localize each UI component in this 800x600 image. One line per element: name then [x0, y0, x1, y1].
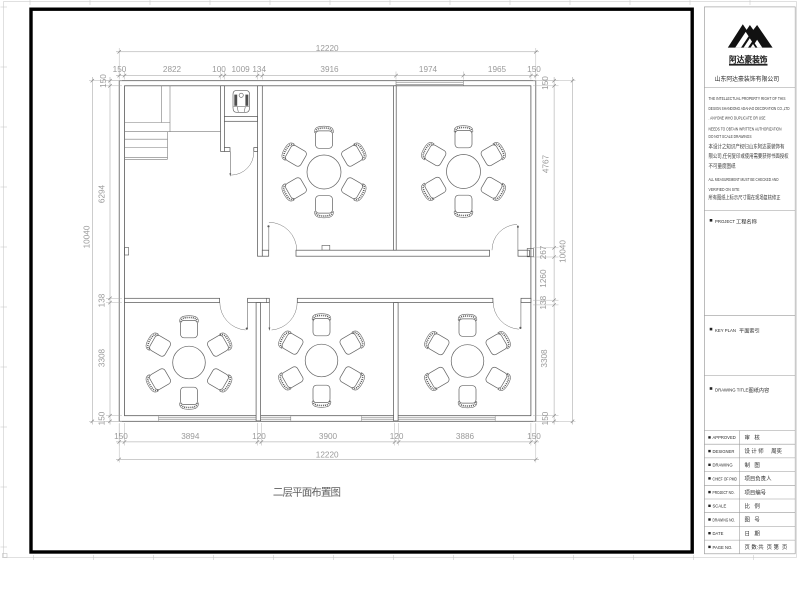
svg-text:134: 134	[252, 65, 266, 74]
svg-text:150: 150	[541, 76, 550, 90]
svg-text:150: 150	[114, 432, 128, 441]
svg-text:1009: 1009	[231, 65, 250, 74]
svg-text:设 计 师 周奕: 设 计 师 周奕	[745, 447, 783, 455]
svg-text:138: 138	[539, 295, 548, 309]
svg-text:. ANYONE WHO DUPLICATE OR USE: . ANYONE WHO DUPLICATE OR USE	[709, 116, 766, 121]
svg-text:DRAWING NO.: DRAWING NO.	[713, 517, 736, 522]
svg-text:3894: 3894	[181, 432, 200, 441]
svg-text:DO NOT SCALE DRAWINGS: DO NOT SCALE DRAWINGS	[709, 134, 752, 139]
svg-text:本设计之知识产权归山东阿达豪装饰有: 本设计之知识产权归山东阿达豪装饰有	[709, 142, 785, 150]
svg-text:1260: 1260	[539, 269, 548, 288]
svg-text:工程名称: 工程名称	[736, 218, 757, 226]
svg-text:限公司,任何复印或使用需要获得书面授权: 限公司,任何复印或使用需要获得书面授权	[709, 152, 789, 160]
svg-text:10040: 10040	[559, 240, 568, 263]
svg-text:不可量度图纸: 不可量度图纸	[709, 162, 736, 170]
svg-text:项目编号: 项目编号	[745, 488, 767, 496]
svg-text:10040: 10040	[82, 225, 91, 248]
svg-text:12220: 12220	[316, 451, 339, 460]
svg-text:6294: 6294	[98, 184, 107, 203]
svg-text:THE INTELLECTUAL PROPERTY RIGH: THE INTELLECTUAL PROPERTY RIGHT OF THIS	[709, 96, 786, 101]
svg-text:4767: 4767	[541, 154, 550, 173]
svg-text:3916: 3916	[320, 65, 339, 74]
svg-text:二层平面布置图: 二层平面布置图	[273, 487, 341, 499]
svg-text:SCALE: SCALE	[713, 504, 727, 509]
svg-text:PROJECT: PROJECT	[715, 219, 735, 224]
svg-text:2822: 2822	[163, 65, 182, 74]
svg-text:PAGE NO.: PAGE NO.	[713, 545, 733, 550]
svg-text:DESIGN SHANDONG ADAHAO DECORAT: DESIGN SHANDONG ADAHAO DECORATION CO.,LT…	[709, 106, 790, 111]
svg-text:120: 120	[252, 432, 266, 441]
svg-text:所有图纸上标示尺寸需在现场复核修正: 所有图纸上标示尺寸需在现场复核修正	[709, 193, 781, 201]
svg-text:1965: 1965	[488, 65, 507, 74]
svg-text:1974: 1974	[419, 65, 438, 74]
svg-text:DRAWING TITLE: DRAWING TITLE	[715, 387, 749, 392]
svg-text:PROJECT NO.: PROJECT NO.	[713, 490, 735, 495]
svg-text:120: 120	[390, 432, 404, 441]
svg-text:日 期: 日 期	[745, 530, 760, 537]
svg-text:DESIGNER: DESIGNER	[713, 449, 735, 454]
svg-text:267: 267	[539, 245, 548, 259]
svg-text:12220: 12220	[316, 44, 339, 53]
svg-text:150: 150	[541, 411, 550, 425]
svg-text:项目负责人: 项目负责人	[745, 475, 773, 483]
svg-text:阿达豪装饰: 阿达豪装饰	[729, 54, 768, 64]
svg-text:图纸内容: 图纸内容	[749, 386, 770, 394]
svg-text:制 图: 制 图	[745, 461, 760, 469]
svg-text:150: 150	[527, 65, 541, 74]
svg-text:150: 150	[98, 411, 107, 425]
svg-text:DRAWING: DRAWING	[713, 463, 733, 468]
svg-text:3308: 3308	[540, 349, 549, 368]
svg-text:比 例: 比 例	[745, 502, 760, 510]
svg-text:CHIEF OF PMD: CHIEF OF PMD	[713, 476, 738, 481]
svg-text:平面索引: 平面索引	[739, 326, 760, 334]
svg-text:3308: 3308	[98, 348, 107, 367]
svg-text:3886: 3886	[456, 432, 475, 441]
svg-text:3900: 3900	[319, 432, 338, 441]
svg-text:150: 150	[527, 432, 541, 441]
svg-text:DATE: DATE	[713, 531, 724, 536]
svg-text:VERIFIED ON SITE: VERIFIED ON SITE	[709, 187, 740, 192]
svg-text:100: 100	[212, 65, 226, 74]
svg-text:ALL MEASUREMENT MUST BE CHECKE: ALL MEASUREMENT MUST BE CHECKED AND	[709, 177, 779, 182]
svg-text:138: 138	[98, 293, 107, 307]
svg-text:150: 150	[113, 65, 127, 74]
svg-text:KEY PLAN: KEY PLAN	[715, 328, 736, 333]
svg-text:页 数:共 页 第 页: 页 数:共 页 第 页	[745, 543, 788, 551]
svg-text:山东阿达豪装饰有限公司: 山东阿达豪装饰有限公司	[715, 75, 780, 83]
svg-text:图 号: 图 号	[745, 516, 761, 524]
svg-text:审 核: 审 核	[745, 433, 761, 441]
svg-text:NEEDS TO OBTAIN WRITTEN AUTHOR: NEEDS TO OBTAIN WRITTEN AUTHORIZATION	[709, 126, 782, 131]
svg-text:APPROVED: APPROVED	[713, 435, 736, 440]
